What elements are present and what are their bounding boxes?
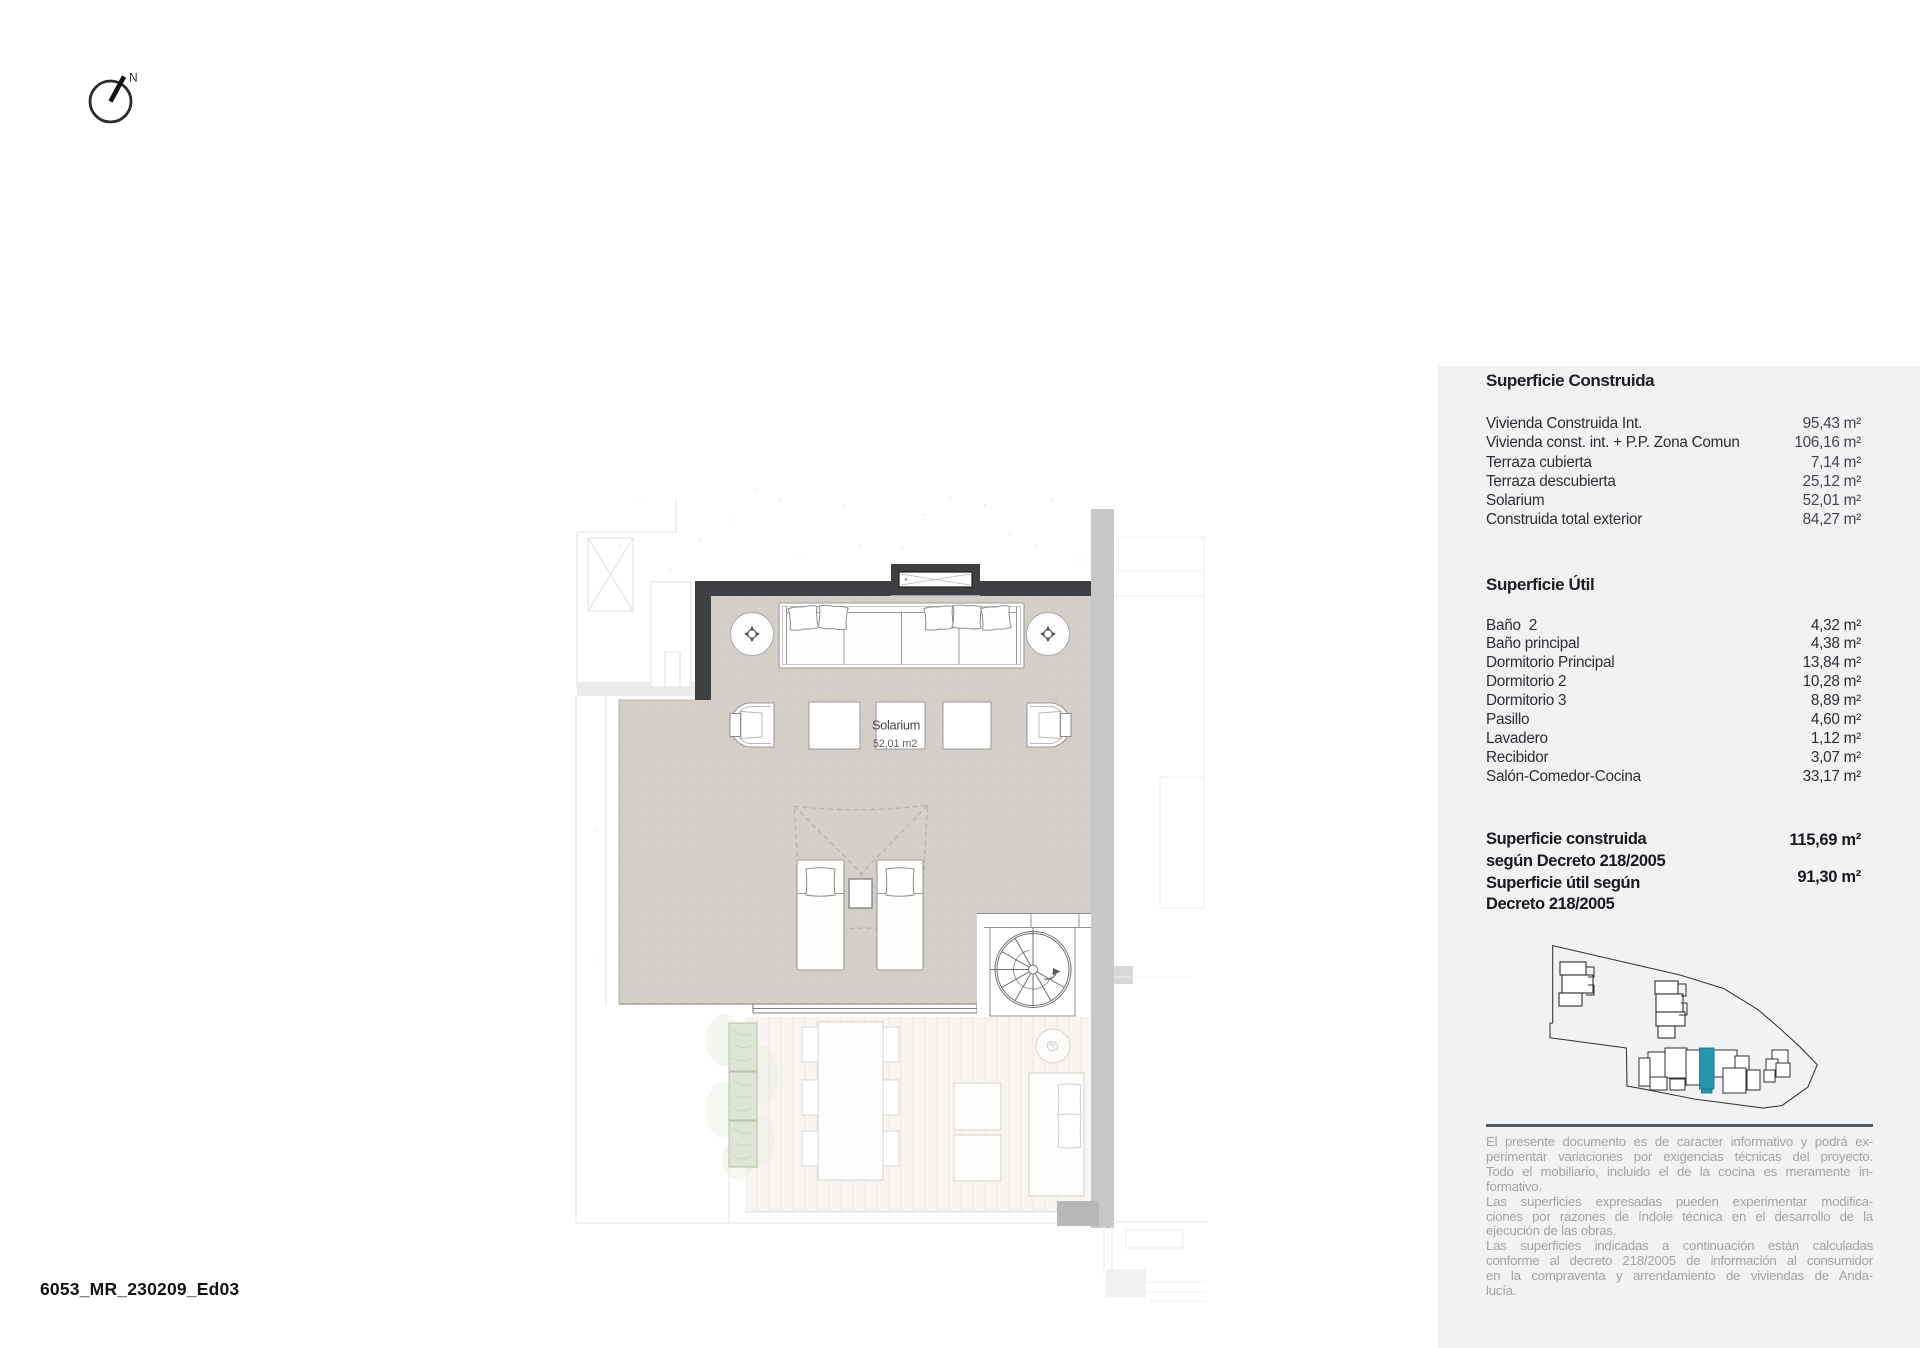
svg-text:52,01 m2: 52,01 m2 [873, 738, 917, 750]
svg-text:Solarium: Solarium [872, 718, 920, 733]
svg-text:N: N [129, 71, 138, 85]
